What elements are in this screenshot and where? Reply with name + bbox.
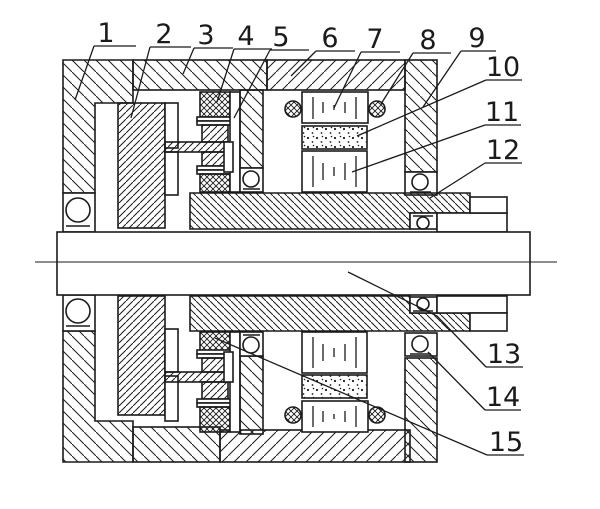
rotor-upper — [118, 103, 165, 228]
part-label-1: 1 — [97, 18, 114, 49]
seal-oring-left-lower — [285, 407, 301, 423]
sleeve-step-inner-lower — [437, 296, 507, 313]
cover-plate-right — [267, 60, 405, 90]
part-label-2: 2 — [155, 19, 172, 50]
clutch-pack-upper — [197, 92, 240, 192]
seal-oring-right — [369, 101, 385, 117]
left-bearing-lower — [63, 295, 95, 331]
sleeve-step-outer-lower — [470, 313, 507, 331]
inner-wall-upper — [240, 90, 263, 168]
part-label-12: 12 — [486, 135, 520, 166]
part-label-14: 14 — [486, 382, 520, 413]
coil-lower-b — [302, 401, 368, 432]
magnet-lower — [302, 375, 367, 398]
part-label-11: 11 — [485, 97, 519, 128]
patent-figure: 123456789101112131415 — [0, 0, 600, 509]
clutch-pack-lower — [197, 332, 240, 432]
wall-bearing-upper — [405, 172, 437, 195]
inner-wall-lower — [240, 356, 263, 434]
magnet-upper — [302, 126, 367, 149]
cover-plate-left — [133, 60, 267, 90]
part-label-5: 5 — [272, 22, 289, 53]
end-wall-upper — [405, 60, 437, 172]
arm-end-plate-lower — [224, 352, 233, 382]
sleeve-step-outer-upper — [470, 197, 507, 213]
sleeve-bearing-upper — [410, 213, 437, 229]
shaft — [57, 232, 530, 295]
part-label-9: 9 — [468, 23, 485, 54]
drive-arm-upper — [165, 142, 232, 152]
sleeve-step-inner-upper — [437, 213, 507, 232]
drive-arm-lower — [165, 372, 232, 382]
arm-end-plate-upper — [224, 142, 233, 172]
part-label-10: 10 — [486, 52, 520, 83]
part-label-8: 8 — [419, 25, 436, 56]
inner-bearing-lower — [240, 332, 263, 356]
seal-oring-left — [285, 101, 301, 117]
part-label-13: 13 — [487, 339, 521, 370]
cup-segment — [165, 329, 178, 372]
part-label-3: 3 — [197, 20, 214, 51]
rotor-lower — [118, 296, 165, 415]
coil-assembly-lower — [285, 332, 385, 432]
part-label-6: 6 — [321, 23, 338, 54]
part-label-4: 4 — [237, 21, 254, 52]
figure-canvas: 123456789101112131415 — [0, 0, 600, 509]
cup-segment — [165, 152, 178, 195]
part-label-15: 15 — [489, 427, 523, 458]
wall-bearing-lower — [405, 333, 437, 356]
end-wall-lower — [405, 358, 437, 462]
part-label-7: 7 — [366, 24, 383, 55]
inner-bearing-upper — [240, 168, 263, 192]
left-bearing-upper — [63, 193, 95, 232]
coil-upper — [302, 92, 368, 123]
